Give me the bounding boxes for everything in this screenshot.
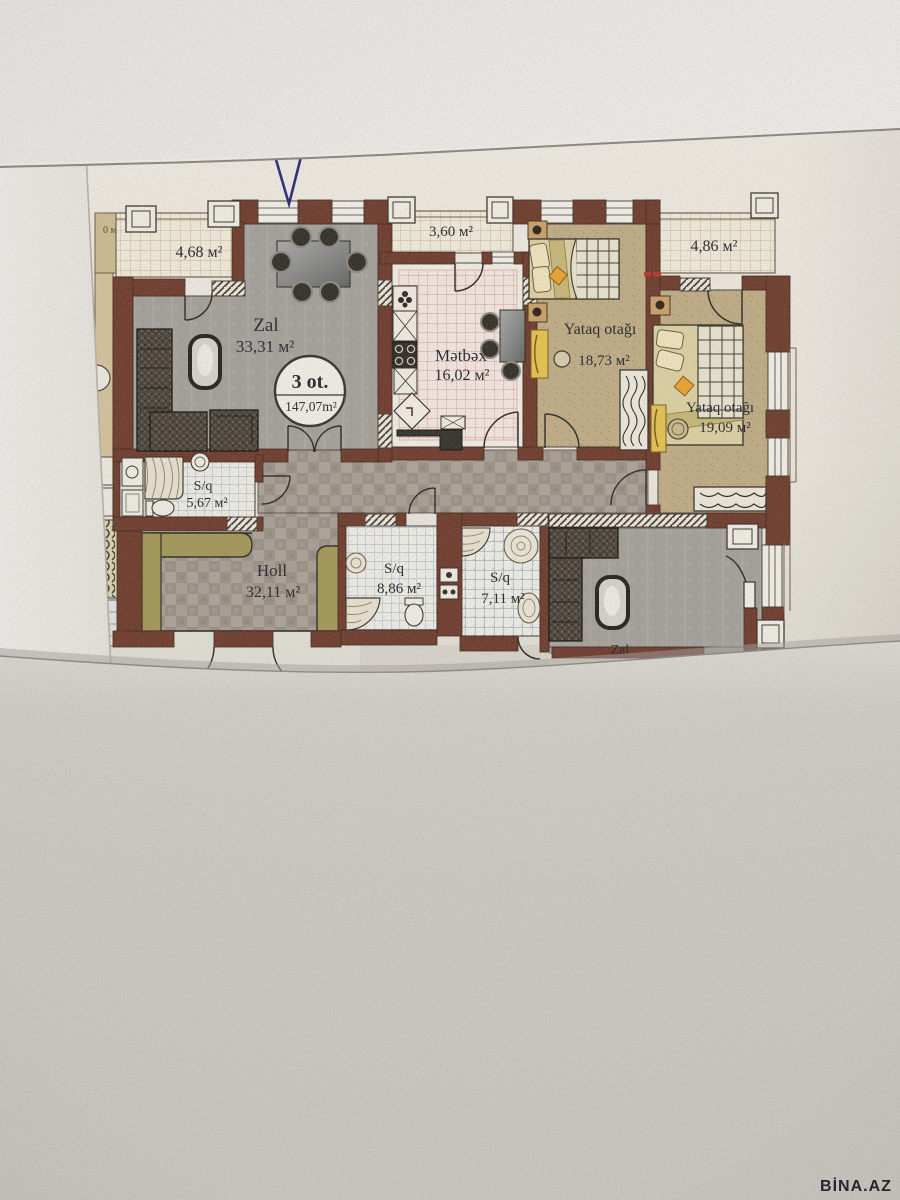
svg-text:BİNA.AZ: BİNA.AZ bbox=[820, 1177, 892, 1195]
